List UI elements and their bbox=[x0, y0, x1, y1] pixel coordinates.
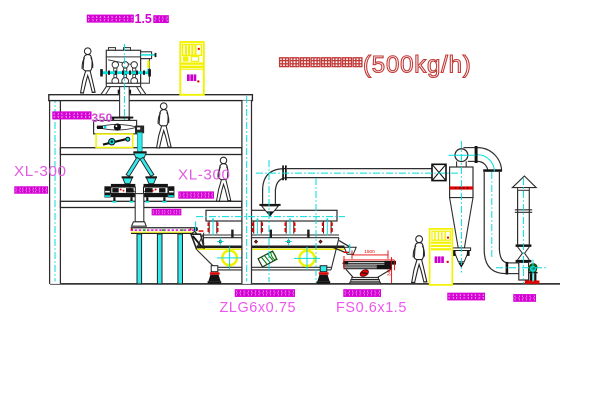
svg-text:340: 340 bbox=[386, 268, 391, 276]
svg-text:FS0.6x1.5: FS0.6x1.5 bbox=[336, 300, 407, 316]
svg-text:ZLG6x0.75: ZLG6x0.75 bbox=[220, 300, 297, 316]
svg-text:XL-300: XL-300 bbox=[14, 163, 67, 180]
svg-text:(500kg/h): (500kg/h) bbox=[363, 52, 472, 79]
svg-text:XL-300: XL-300 bbox=[178, 167, 231, 184]
svg-text:1500: 1500 bbox=[364, 249, 375, 254]
svg-text:350: 350 bbox=[92, 111, 113, 125]
svg-text:1.5: 1.5 bbox=[135, 12, 152, 26]
